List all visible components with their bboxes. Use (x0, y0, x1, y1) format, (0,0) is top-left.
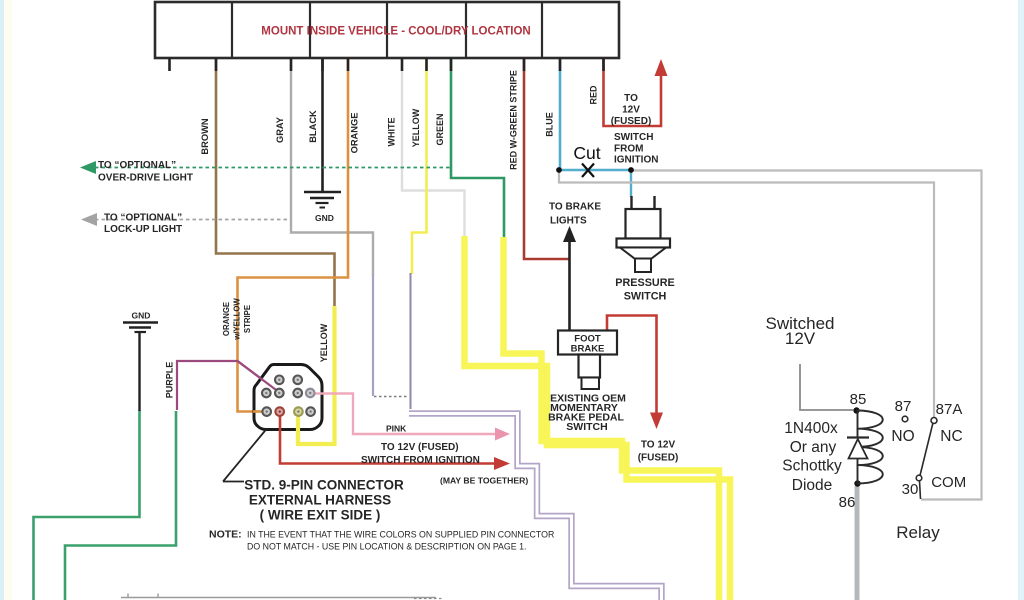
svg-text:TO “OPTIONAL”: TO “OPTIONAL” (104, 213, 182, 224)
svg-text:NO: NO (891, 428, 914, 445)
svg-text:SWITCH: SWITCH (624, 291, 667, 303)
svg-text:LIGHTS: LIGHTS (550, 216, 587, 227)
svg-text:TO 12V (FUSED): TO 12V (FUSED) (381, 442, 459, 453)
svg-text:GND: GND (132, 311, 151, 321)
svg-text:YELLOW: YELLOW (319, 323, 329, 362)
svg-text:w/YELLOW: w/YELLOW (233, 298, 242, 341)
svg-text:YELLOW: YELLOW (411, 108, 421, 147)
svg-text:TO “OPTIONAL”: TO “OPTIONAL” (98, 160, 176, 171)
svg-text:NC: NC (940, 428, 962, 445)
svg-text:1N400x: 1N400x (784, 420, 838, 437)
svg-text:SWITCH FROM IGNITION: SWITCH FROM IGNITION (361, 455, 480, 466)
svg-text:STRIPE: STRIPE (243, 305, 252, 333)
svg-text:BLUE: BLUE (545, 112, 555, 137)
svg-text:RED: RED (589, 85, 599, 105)
svg-text:IN THE EVENT THAT THE WIRE COL: IN THE EVENT THAT THE WIRE COLORS ON SUP… (247, 530, 554, 540)
svg-text:BLACK: BLACK (308, 110, 318, 143)
svg-text:ORANGE: ORANGE (350, 113, 360, 154)
svg-text:BRAKE: BRAKE (571, 344, 605, 355)
svg-text:ORANGE: ORANGE (222, 302, 231, 336)
svg-text:(FUSED): (FUSED) (638, 453, 679, 464)
svg-text:SWITCH: SWITCH (566, 421, 607, 433)
svg-text:WHITE: WHITE (387, 118, 397, 147)
svg-text:86: 86 (839, 494, 856, 511)
svg-text:RED W-GREEN STRIPE: RED W-GREEN STRIPE (509, 70, 519, 170)
svg-text:BROWN: BROWN (200, 118, 210, 154)
svg-text:NOTE:: NOTE: (209, 529, 242, 541)
svg-text:87: 87 (895, 398, 912, 415)
svg-text:Cut: Cut (573, 143, 600, 163)
svg-text:TO BRAKE: TO BRAKE (549, 202, 601, 213)
svg-text:Diode: Diode (792, 477, 833, 494)
svg-text:TO: TO (624, 93, 638, 104)
svg-text:Relay: Relay (896, 523, 940, 542)
svg-text:COM: COM (931, 474, 966, 491)
svg-text:OVER-DRIVE LIGHT: OVER-DRIVE LIGHT (98, 173, 193, 184)
svg-text:12V: 12V (622, 105, 640, 116)
svg-text:(FUSED): (FUSED) (611, 116, 652, 127)
svg-text:GND: GND (315, 213, 334, 223)
svg-text:( WIRE EXIT SIDE ): ( WIRE EXIT SIDE ) (260, 508, 381, 523)
svg-text:Schottky: Schottky (782, 458, 842, 475)
svg-text:GREEN: GREEN (435, 113, 445, 145)
svg-text:EXTERNAL HARNESS: EXTERNAL HARNESS (249, 493, 391, 508)
svg-text:(MAY BE TOGETHER): (MAY BE TOGETHER) (440, 476, 528, 486)
svg-text:87A: 87A (936, 401, 963, 418)
svg-text:12V: 12V (785, 329, 816, 348)
svg-text:LOCK-UP LIGHT: LOCK-UP LIGHT (104, 224, 182, 235)
svg-text:MOUNT INSIDE VEHICLE - COOL/DR: MOUNT INSIDE VEHICLE - COOL/DRY LOCATION (261, 26, 530, 38)
svg-text:30: 30 (902, 481, 919, 498)
svg-text:Or any: Or any (790, 439, 837, 456)
svg-text:DO NOT MATCH - USE PIN LOCATIO: DO NOT MATCH - USE PIN LOCATION & DESCRI… (247, 542, 526, 552)
svg-text:FROM: FROM (614, 144, 643, 155)
svg-text:PRESSURE: PRESSURE (615, 277, 674, 289)
svg-text:IGNITION: IGNITION (614, 155, 658, 166)
svg-text:TO 12V: TO 12V (641, 440, 676, 451)
svg-text:PURPLE: PURPLE (165, 362, 175, 399)
svg-text:STD. 9-PIN CONNECTOR: STD. 9-PIN CONNECTOR (244, 478, 404, 493)
svg-text:PINK: PINK (386, 424, 407, 434)
svg-text:SWITCH: SWITCH (614, 132, 653, 143)
svg-text:GRAY: GRAY (275, 116, 285, 143)
svg-text:85: 85 (850, 391, 867, 408)
